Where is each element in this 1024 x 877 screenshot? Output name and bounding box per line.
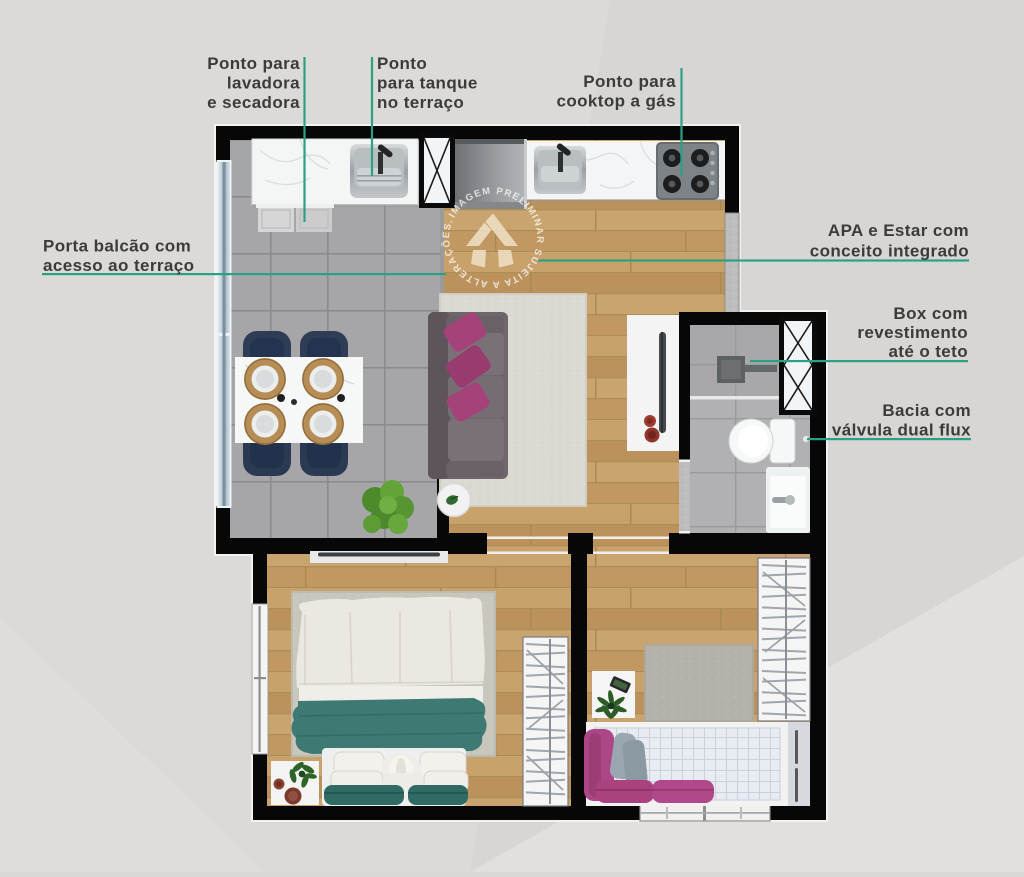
svg-text:até o teto: até o teto xyxy=(888,342,968,361)
svg-text:acesso ao terraço: acesso ao terraço xyxy=(43,256,194,275)
svg-text:Box com: Box com xyxy=(893,304,968,323)
svg-text:válvula dual flux: válvula dual flux xyxy=(832,421,971,440)
svg-text:lavadora: lavadora xyxy=(227,74,300,93)
svg-text:conceito integrado: conceito integrado xyxy=(810,242,969,261)
svg-text:e secadora: e secadora xyxy=(207,93,300,112)
svg-text:cooktop a gás: cooktop a gás xyxy=(556,92,676,111)
svg-text:Bacia com: Bacia com xyxy=(882,401,971,420)
svg-text:revestimento: revestimento xyxy=(857,323,968,342)
svg-text:no terraço: no terraço xyxy=(377,93,464,112)
svg-text:Ponto para: Ponto para xyxy=(583,72,676,91)
svg-text:Porta balcão com: Porta balcão com xyxy=(43,237,191,256)
svg-text:para tanque: para tanque xyxy=(377,74,478,93)
svg-text:APA e Estar com: APA e Estar com xyxy=(828,221,969,240)
svg-text:Ponto para: Ponto para xyxy=(207,54,300,73)
svg-text:Ponto: Ponto xyxy=(377,54,427,73)
